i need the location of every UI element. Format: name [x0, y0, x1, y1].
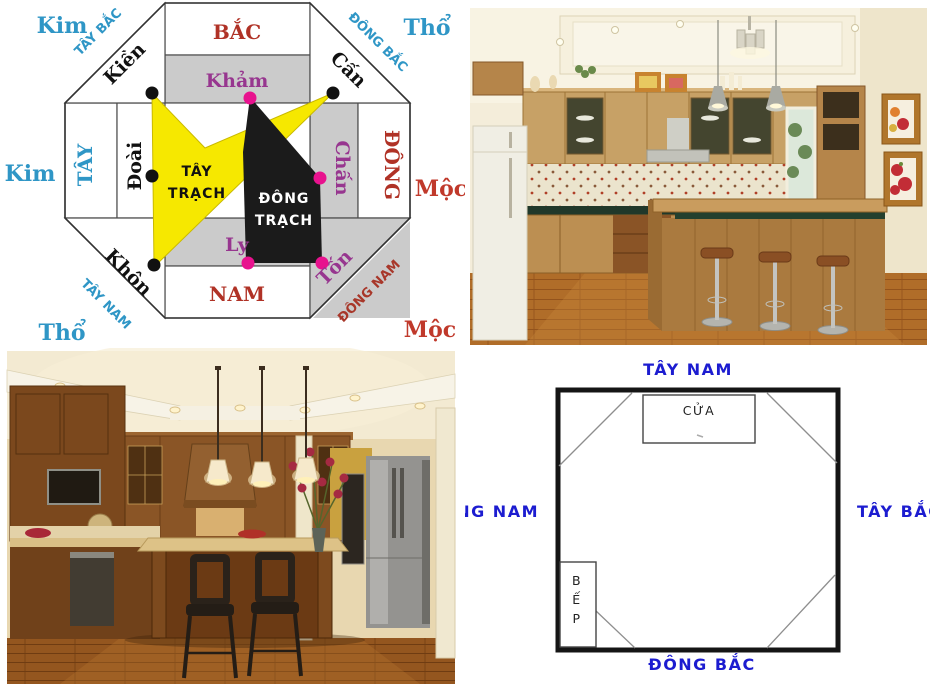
element-label-nw: Kim	[37, 13, 88, 39]
stove-letter: B	[572, 573, 582, 588]
stove-letter: P	[572, 611, 581, 626]
floorplan-label-bottom: ĐÔNG BẮC	[648, 653, 755, 674]
direction-label-west: TÂY	[73, 143, 97, 186]
kitchen-island	[138, 538, 348, 638]
kitchen-photo-traditional-panel	[0, 348, 465, 696]
floorplan-label-left: ĐÔNG NAM	[465, 502, 539, 521]
door-box: CỬA	[643, 395, 755, 443]
floorplan-label-right: TÂY BẮC	[857, 500, 930, 521]
back-cabinets	[122, 432, 353, 541]
refrigerator	[366, 456, 430, 628]
left-counter	[10, 526, 160, 639]
bagua-diagram: Kim Thổ Kim Mộc Thổ Mộc BẮC NAM TÂY ĐÔNG…	[0, 0, 465, 348]
element-label-se: Mộc	[404, 317, 456, 343]
over-fridge-cabinet	[473, 62, 523, 95]
floorplan-label-top: TÂY NAM	[643, 360, 733, 379]
window	[787, 108, 815, 202]
east-house-label-line1: ĐÔNG	[259, 189, 310, 207]
trigram-label-chan: Chấn	[331, 140, 353, 195]
direction-label-east: ĐÔNG	[380, 130, 405, 200]
element-label-ne: Thổ	[403, 13, 450, 41]
kitchen-photo-render	[465, 0, 930, 348]
kitchen-floorplan: CỬA B Ế P TÂY NAM ĐÔNG BẮC ĐÔNG NAM TÂY …	[465, 348, 930, 696]
kitchen-photo-traditional	[0, 348, 465, 696]
east-house-label-line2: TRẠCH	[255, 213, 313, 229]
west-house-label-line1: TÂY	[181, 163, 212, 180]
element-label-w: Kim	[5, 161, 56, 187]
kitchen-floorplan-panel: CỬA B Ế P TÂY NAM ĐÔNG BẮC ĐÔNG NAM TÂY …	[465, 348, 930, 696]
tall-cabinet	[817, 86, 865, 216]
west-house-label-line2: TRẠCH	[168, 186, 226, 202]
range-hood	[647, 150, 709, 162]
direction-label-north: BẮC	[213, 17, 261, 44]
trigram-label-doai: Đoài	[124, 142, 146, 191]
element-label-e: Mộc	[415, 176, 465, 202]
door-label: CỬA	[683, 402, 716, 418]
stove-letter: Ế	[572, 591, 581, 607]
trigram-label-ly: Ly	[225, 234, 250, 256]
breakfast-bar	[648, 199, 887, 331]
stove-box: B Ế P	[560, 562, 596, 647]
bagua-diagram-panel: Kim Thổ Kim Mộc Thổ Mộc BẮC NAM TÂY ĐÔNG…	[0, 0, 465, 348]
fruit-bowl	[238, 530, 266, 539]
refrigerator	[473, 126, 527, 340]
direction-label-south: NAM	[209, 282, 265, 306]
element-label-sw: Thổ	[38, 318, 85, 346]
range-hood-duct	[667, 118, 689, 150]
framed-picture	[882, 94, 920, 144]
trigram-label-kham: Khảm	[206, 70, 269, 92]
kitchen-photo-render-panel	[465, 0, 930, 348]
framed-picture	[884, 152, 922, 206]
